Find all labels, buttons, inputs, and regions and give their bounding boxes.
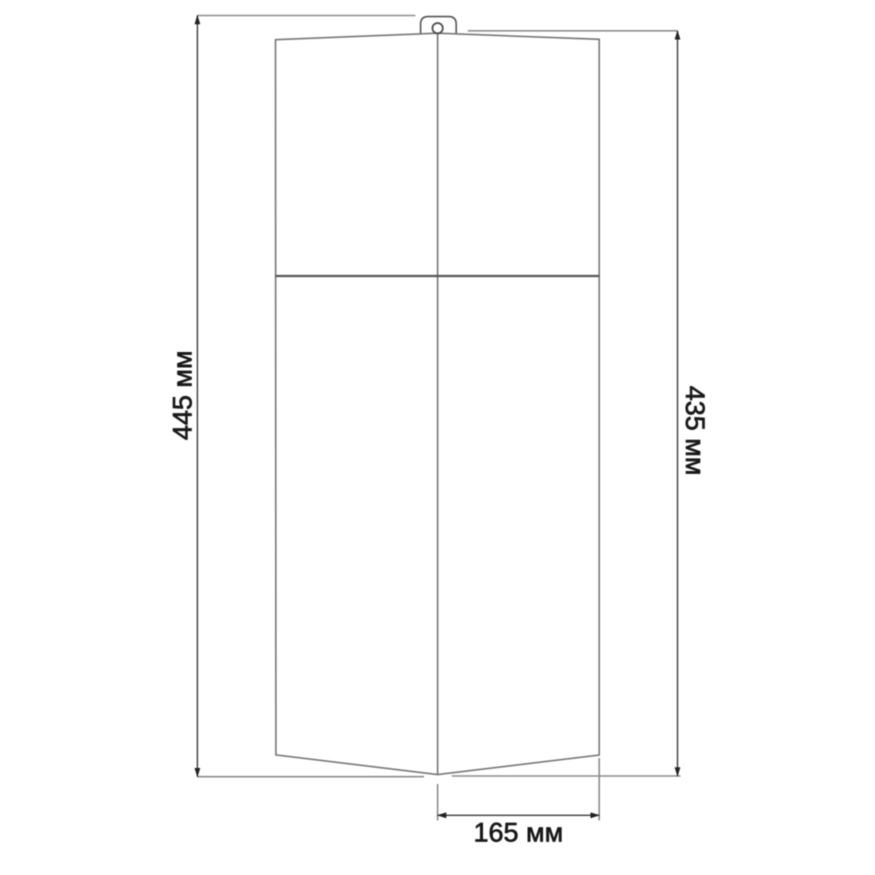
svg-text:435 мм: 435 мм — [680, 386, 710, 476]
svg-text:445 мм: 445 мм — [168, 350, 198, 440]
svg-text:165 мм: 165 мм — [473, 818, 563, 848]
